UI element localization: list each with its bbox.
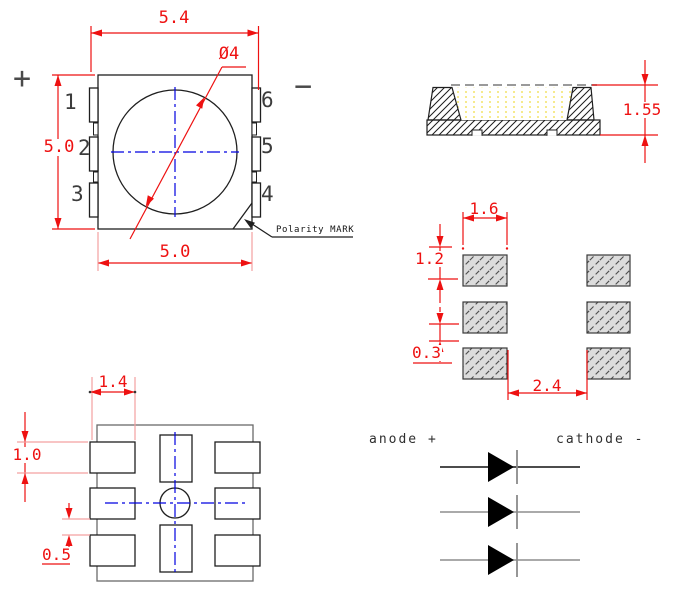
minus-symbol: − xyxy=(294,72,312,102)
side-view-base xyxy=(427,120,600,135)
pin-label-6: 6 xyxy=(261,90,274,111)
plus-symbol: + xyxy=(13,64,31,94)
diode-1 xyxy=(440,450,580,484)
cathode-label: cathode - xyxy=(556,433,644,446)
diode-3 xyxy=(440,543,580,577)
diode-triangle xyxy=(488,545,514,575)
dim-pad-gap-0-3: 0.3 xyxy=(411,345,442,361)
dim-bottom-pad-width: 1.4 xyxy=(92,374,134,390)
anode-label: anode + xyxy=(369,433,438,446)
led-package-drawing: 5.4 Ø4 5.0 5.0 1 2 3 6 5 4 + − Polarity … xyxy=(0,0,691,602)
dim-pad-pitch-1-2: 1.2 xyxy=(414,251,445,267)
pin-label-1: 1 xyxy=(64,92,77,113)
side-view-base-notch xyxy=(472,130,482,136)
side-view-base-notch xyxy=(547,130,557,136)
pad-layout-dimension-arrows xyxy=(437,215,588,397)
dim-bottom-pad-height: 1.0 xyxy=(11,447,43,463)
pin-label-3: 3 xyxy=(71,184,84,205)
pin-label-2: 2 xyxy=(78,138,91,159)
dim-pad-width-1-6: 1.6 xyxy=(464,201,504,217)
dim-side-height: 1.55 xyxy=(621,102,663,118)
dim-top-width: 5.4 xyxy=(152,10,196,27)
dim-column-gap-2-4: 2.4 xyxy=(526,378,568,394)
solder-pads xyxy=(463,255,630,379)
side-view-encapsulant xyxy=(452,88,573,121)
dim-bottom-width: 5.0 xyxy=(153,244,197,261)
polarity-mark-label: Polarity MARK xyxy=(276,226,354,235)
dim-lens-diameter: Ø4 xyxy=(211,46,247,63)
dim-left-height: 5.0 xyxy=(41,139,77,156)
pin-label-4: 4 xyxy=(261,184,274,205)
dim-bottom-pad-gap: 0.5 xyxy=(41,547,72,563)
diode-triangle xyxy=(488,452,514,482)
solder-pad-layout xyxy=(413,212,630,400)
diode-triangle xyxy=(488,497,514,527)
drawing-linework xyxy=(0,0,691,602)
pin-label-5: 5 xyxy=(261,136,274,157)
circuit-diagram xyxy=(440,450,580,577)
diode-2 xyxy=(440,495,580,529)
